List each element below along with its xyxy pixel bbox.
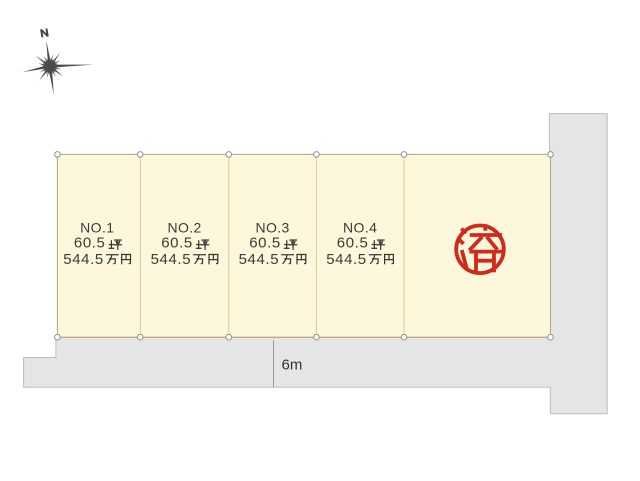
svg-text:NO.2: NO.2 [167,220,201,236]
svg-text:544.5: 544.5 [63,251,104,268]
svg-text:6m: 6m [282,357,303,374]
svg-text:60.5: 60.5 [161,235,193,252]
svg-text:544.5: 544.5 [239,251,280,268]
svg-text:NO.4: NO.4 [343,220,377,236]
svg-text:544.5: 544.5 [326,251,367,268]
svg-text:60.5: 60.5 [74,235,106,252]
svg-text:NO.1: NO.1 [80,220,114,236]
svg-text:NO.3: NO.3 [255,220,289,236]
svg-text:60.5: 60.5 [337,235,369,252]
svg-text:544.5: 544.5 [151,251,192,268]
svg-text:60.5: 60.5 [249,235,281,252]
